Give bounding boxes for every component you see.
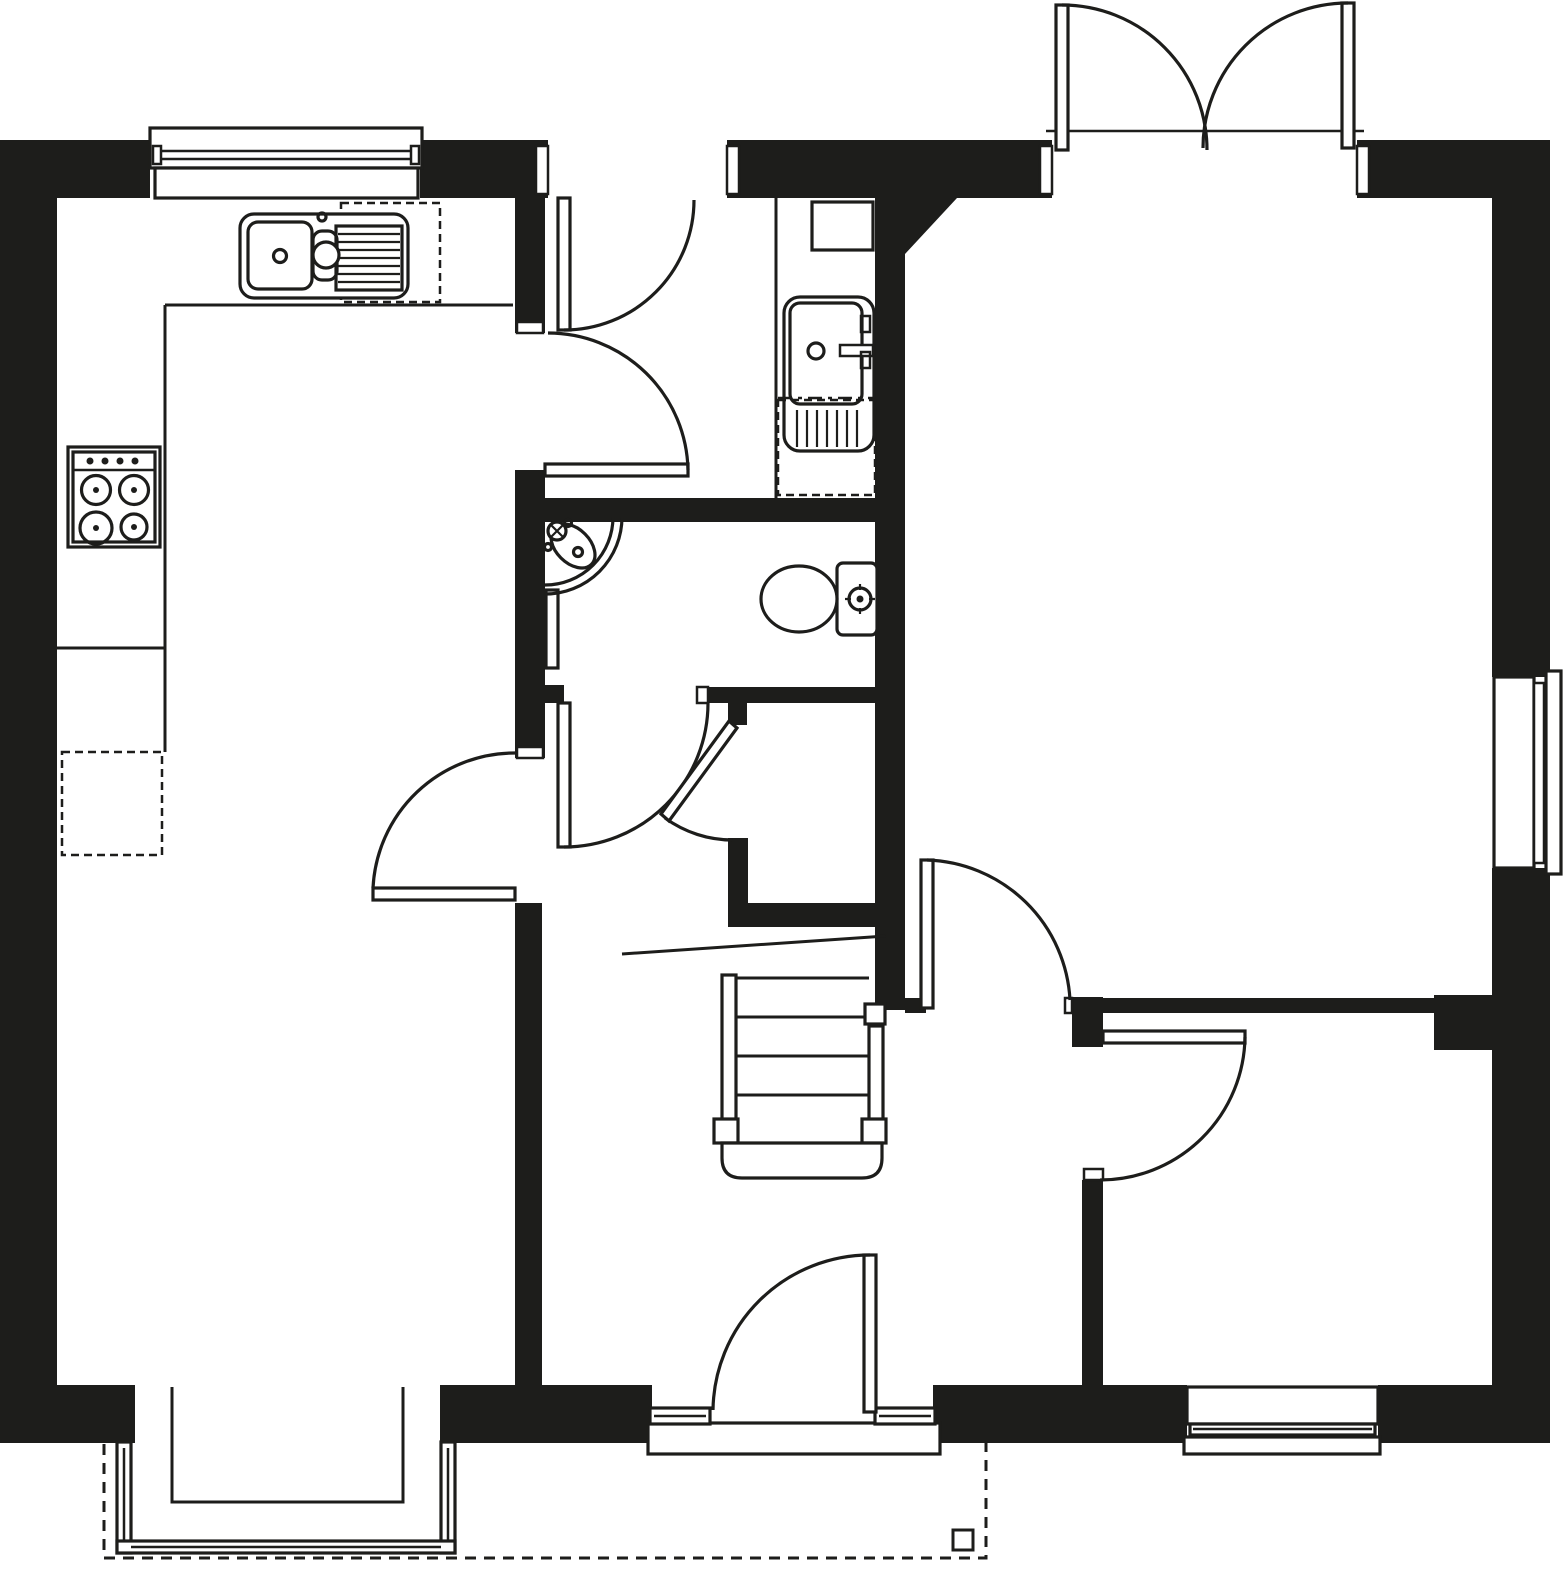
jamb-rear-right	[727, 146, 739, 194]
cupboard-door-swing	[665, 818, 733, 840]
hob-knob-c	[117, 458, 124, 465]
wall-bottom-d	[1378, 1385, 1550, 1443]
wall-study-left	[1082, 1180, 1103, 1385]
hob-knob-b	[102, 458, 109, 465]
toilet-flush-dot	[857, 596, 864, 603]
kitchen-window-frame	[150, 128, 422, 168]
hob-knob-a	[87, 458, 94, 465]
wall-hall-left	[515, 903, 542, 1385]
wall-bottom-a	[0, 1385, 135, 1443]
wall-thin-mid	[1072, 998, 1434, 1013]
hob-knob-d	[132, 458, 139, 465]
french-door-left-swing	[1062, 5, 1207, 150]
hob-burner-bl-dot	[93, 525, 99, 531]
wall-bottom-c	[933, 1385, 1187, 1443]
hob-burner-tl-dot	[93, 487, 99, 493]
cupboard-door-leaf	[661, 721, 737, 821]
porch-post	[953, 1530, 973, 1550]
floor-plan-page	[0, 0, 1563, 1571]
study-window-sill	[1184, 1437, 1380, 1454]
utility-appliance-handle	[840, 345, 873, 356]
porch-slab	[648, 1423, 940, 1454]
jamb-french-left	[1040, 146, 1052, 194]
toilet-bowl	[761, 566, 837, 632]
stairs-treads	[736, 978, 869, 1095]
bay-window-reveal	[172, 1387, 403, 1502]
stairs-rail-right	[869, 1026, 883, 1121]
study-door-leaf	[1103, 1031, 1245, 1043]
jamb-french-right	[1357, 146, 1369, 194]
stairs-newel-bottom-right	[862, 1119, 886, 1143]
kitchen-window-cap-left	[153, 146, 161, 164]
jamb-living-top	[517, 747, 543, 758]
wall-cupboard-c	[747, 903, 905, 927]
jamb-wc-right	[697, 687, 708, 703]
kitchen-sink-tap	[313, 242, 339, 268]
family-room-door-leaf	[921, 860, 933, 1008]
wall-wc-top	[515, 498, 905, 522]
family-window-glazing	[1534, 683, 1544, 863]
living-room-door-leaf	[373, 888, 515, 900]
wc-door-swing	[564, 703, 708, 847]
kitchen-sink-drainer-ribs	[338, 234, 400, 282]
wc-basin-drain	[574, 548, 583, 557]
wall-top-c	[727, 140, 1052, 198]
wall-wc-bottom-a	[515, 685, 564, 703]
living-room-door-swing	[373, 753, 515, 888]
utility-wall-cupboard	[812, 202, 873, 250]
jamb-study-bottom	[1084, 1169, 1103, 1180]
french-door-right-leaf	[1342, 3, 1354, 148]
family-window-frame	[1494, 677, 1534, 868]
family-room-door-swing	[927, 860, 1070, 1000]
kitchen-appliance-space-dashed	[62, 752, 162, 855]
wall-right-b	[1492, 868, 1550, 1385]
wc-radiator	[546, 590, 558, 668]
stairs-newel-top-right	[865, 1004, 885, 1024]
front-door-swing	[713, 1255, 870, 1410]
lobby-kitchen-door-leaf	[545, 464, 688, 476]
wall-top-d	[1357, 140, 1550, 198]
rear-door-leaf	[558, 198, 570, 330]
floor-plan-drawing	[0, 0, 1563, 1571]
study-window-frame	[1187, 1387, 1378, 1424]
wall-kitchen-lobby-a	[515, 198, 545, 333]
wall-bottom-b	[440, 1385, 652, 1443]
lobby-kitchen-door-swing	[548, 333, 688, 470]
french-door-right-swing	[1203, 3, 1348, 148]
jamb-familyroom-strike	[1065, 998, 1072, 1013]
family-window-sill	[1546, 671, 1561, 874]
wall-stub-right	[1434, 995, 1492, 1050]
rear-door-swing	[564, 200, 694, 330]
french-door-left-leaf	[1056, 5, 1068, 150]
jamb-lobby-top	[517, 322, 543, 333]
stairs-bullnose-step	[722, 1143, 882, 1178]
kitchen-window-sill	[155, 168, 418, 198]
stairs-cut-line	[622, 936, 886, 954]
wall-core-right	[875, 198, 905, 1010]
wall-right-a	[1492, 198, 1550, 677]
wall-left	[0, 140, 57, 1442]
wall-top-b	[420, 140, 548, 198]
wc-door-leaf	[558, 703, 570, 847]
hob-inner	[73, 452, 155, 542]
hob-burner-tr-dot	[131, 487, 137, 493]
jamb-rear-left	[536, 146, 548, 194]
wall-cupboard-b	[728, 838, 748, 927]
wc-basin-knob-a	[545, 544, 552, 551]
stairs-newel-bottom-left	[714, 1119, 738, 1143]
front-door-leaf	[864, 1255, 876, 1412]
stairs-rail-left	[722, 975, 736, 1121]
utility-appliance-rack	[797, 410, 857, 447]
hob-burner-br-dot	[131, 524, 137, 530]
wall-chamfer	[905, 198, 957, 254]
kitchen-window-cap-right	[411, 146, 419, 164]
study-door-swing	[1100, 1037, 1245, 1180]
